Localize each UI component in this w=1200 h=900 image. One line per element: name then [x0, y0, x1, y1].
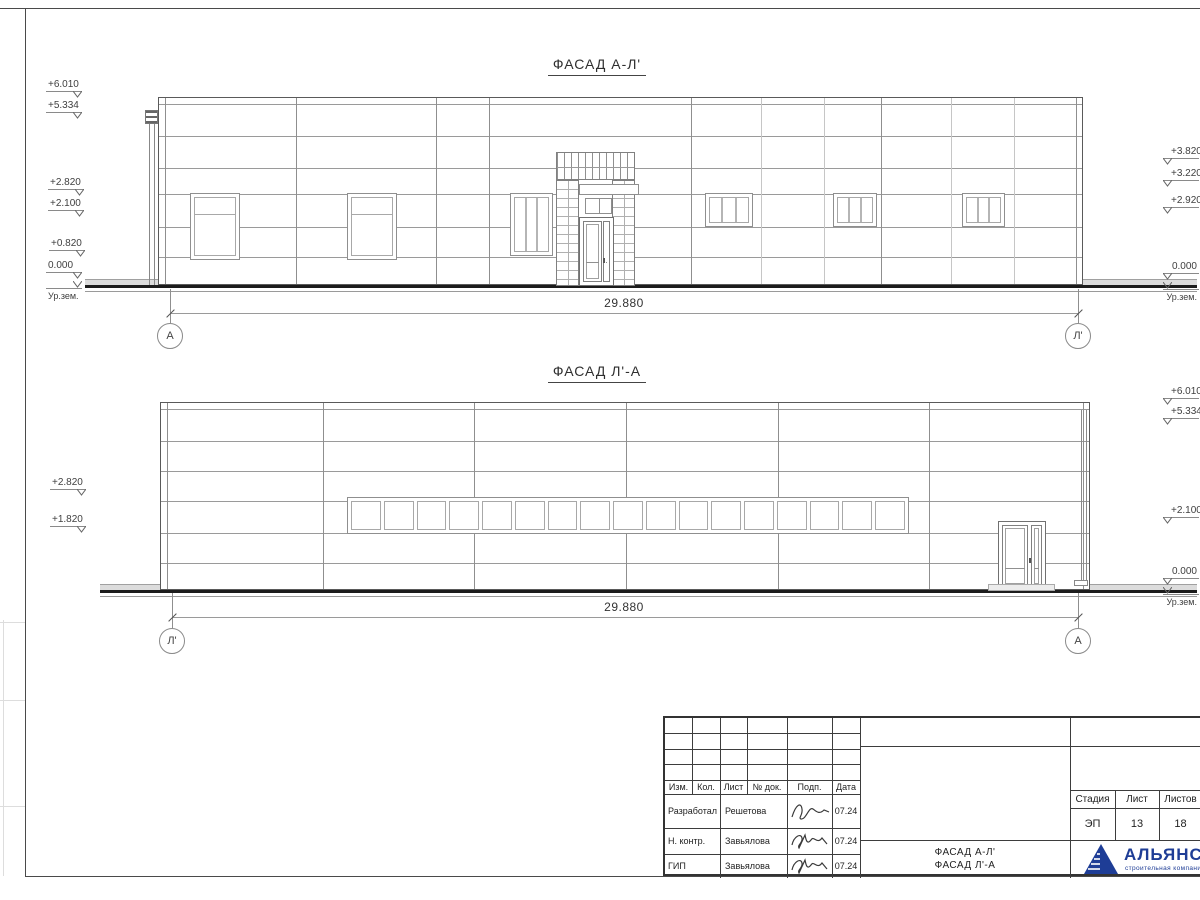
door-handle	[1029, 558, 1031, 563]
elevation-mark: +2.820	[48, 177, 84, 190]
signature	[789, 830, 831, 852]
row-date: 07.24	[832, 828, 860, 854]
elevation-arrow-icon	[1163, 272, 1172, 279]
ribbon-window-pane	[842, 501, 872, 530]
row-role: Н. контр.	[665, 828, 720, 854]
title-block-line	[665, 764, 860, 765]
door-rail	[1005, 568, 1025, 569]
ribbon-window-pane	[646, 501, 676, 530]
ribbon-window-pane	[613, 501, 643, 530]
company-logo-icon	[1084, 844, 1118, 874]
elevation-mark: +6.010	[46, 79, 82, 92]
row-date: 07.24	[832, 794, 860, 828]
window	[833, 193, 877, 227]
elevation-mark: +3.820	[1163, 146, 1199, 159]
entrance-door	[579, 217, 614, 286]
title-block-line	[665, 749, 860, 750]
axis-circle: Л'	[1065, 323, 1091, 349]
column-header-podp: Подп.	[787, 780, 832, 794]
signature	[789, 855, 831, 877]
elevation-arrow-icon	[1163, 417, 1172, 424]
ground-line	[85, 285, 1197, 288]
binding-margin-line	[0, 700, 25, 701]
row-date: 07.24	[832, 854, 860, 878]
panel-joint-line	[161, 471, 1089, 472]
document-title-line1: ФАСАД А-Л'	[935, 846, 996, 859]
panel-joint-line	[159, 136, 1082, 137]
axis-label: А	[166, 330, 173, 342]
elevation-arrow-icon	[76, 249, 85, 256]
axis-label: А	[1074, 635, 1081, 647]
elevation-arrow-icon	[77, 525, 86, 532]
entrance-canopy-hatch	[556, 152, 635, 180]
elevation-arrow-icon	[75, 188, 84, 195]
column-header-data: Дата	[832, 780, 860, 794]
window-pane	[527, 198, 539, 251]
panel-joint-line	[161, 441, 1089, 442]
company-logo-cell: АЛЬЯНС строительная компания	[1070, 840, 1200, 878]
row-role: ГИП	[665, 854, 720, 878]
door-glass	[1005, 528, 1025, 584]
sheet-number: 13	[1115, 808, 1159, 840]
facade-top-title: ФАСАД А-Л'	[512, 56, 682, 72]
downspout	[149, 124, 155, 285]
window-pane	[710, 198, 723, 222]
elevation-mark: +6.010	[1163, 386, 1199, 399]
title-block: Изм. Кол. Лист № док. Подп. Дата Разрабо…	[663, 716, 1200, 876]
door-rail	[1034, 568, 1039, 569]
elevation-mark: +2.920	[1163, 195, 1199, 208]
transom-mullion	[599, 199, 600, 213]
panel-seam	[691, 98, 692, 284]
elevation-mark-zero: 0.000Ур.зем.	[46, 260, 82, 302]
column-header-ndok: № док.	[747, 780, 787, 794]
extension-line	[172, 593, 173, 628]
door-rail	[606, 262, 607, 263]
axis-label: Л'	[167, 635, 176, 647]
stage-column-header: Стадия	[1070, 790, 1115, 808]
sheet-frame-top	[0, 8, 1200, 9]
elevation-mark: +5.334	[46, 100, 82, 113]
door-glass	[586, 224, 599, 279]
ground-line-thin	[85, 291, 1197, 292]
title-block-line	[860, 746, 1200, 747]
facade-bottom-drawing	[160, 402, 1090, 590]
panel-seam	[881, 98, 882, 284]
panel-seam	[778, 403, 779, 589]
ground-level-label: Ур.зем.	[46, 288, 82, 302]
row-name: Решетова	[722, 794, 786, 828]
exit-door	[998, 521, 1046, 591]
door-rail	[586, 262, 599, 263]
window-pane	[850, 198, 862, 222]
ribbon-window-pane	[875, 501, 905, 530]
axis-circle: А	[157, 323, 183, 349]
panel-seam	[929, 403, 930, 589]
canopy-joint	[557, 167, 634, 168]
window-frame	[709, 197, 749, 223]
ribbon-window	[347, 497, 909, 534]
sheets-total: 18	[1159, 808, 1200, 840]
panel-seam-light	[761, 98, 762, 284]
downspout	[1081, 410, 1087, 582]
ribbon-window-pane	[417, 501, 447, 530]
facade-top-title-text: ФАСАД А-Л'	[548, 56, 646, 76]
ground-level-label: Ур.зем.	[1163, 594, 1199, 608]
elevation-mark: +0.820	[49, 238, 85, 251]
sheet-frame-left	[25, 8, 26, 876]
window-pane	[967, 198, 979, 222]
window-pane	[979, 198, 991, 222]
stage-value: ЭП	[1070, 808, 1115, 840]
company-name: АЛЬЯНС	[1124, 845, 1200, 865]
entrance-sign-band	[579, 184, 639, 195]
window-transom	[351, 214, 393, 215]
elevation-arrow-icon	[1163, 179, 1172, 186]
elevation-arrow-icon	[1163, 516, 1172, 523]
axis-circle: Л'	[159, 628, 185, 654]
elevation-arrow-icon	[1163, 281, 1172, 288]
door-sidelight	[1031, 525, 1042, 587]
panel-seam-light	[824, 98, 825, 284]
window	[347, 193, 397, 260]
corner-line	[1076, 98, 1077, 284]
row-name: Завьялова	[722, 854, 786, 878]
elevation-arrow-icon	[1163, 157, 1172, 164]
ground-level-label: Ур.зем.	[1163, 289, 1199, 303]
elevation-arrow-icon	[1163, 586, 1172, 593]
binding-margin-line	[0, 806, 25, 807]
extension-line	[1078, 593, 1079, 628]
ground-line-thin	[100, 596, 1197, 597]
panel-seam	[296, 98, 297, 284]
panel-seam	[474, 403, 475, 589]
sheet-column-header: Лист	[1115, 790, 1159, 808]
ribbon-window-pane	[548, 501, 578, 530]
dimension-line	[172, 617, 1078, 618]
window	[962, 193, 1005, 227]
window-frame	[514, 197, 549, 252]
panel-seam	[436, 98, 437, 284]
facade-bottom-title: ФАСАД Л'-А	[512, 363, 682, 379]
elevation-mark-zero: 0.000Ур.зем.	[1163, 566, 1199, 608]
elevation-arrow-icon	[77, 488, 86, 495]
sheets-column-header: Листов	[1159, 790, 1200, 808]
ribbon-window-pane	[351, 501, 381, 530]
door-glass	[1034, 528, 1039, 584]
elevation-arrow-icon	[1163, 206, 1172, 213]
window-pane	[737, 198, 748, 222]
elevation-arrow-icon	[1163, 577, 1172, 584]
ribbon-window-pane	[777, 501, 807, 530]
panel-seam	[626, 403, 627, 589]
parapet-line	[159, 104, 1082, 105]
elevation-mark: +2.100	[1163, 505, 1199, 518]
door-leaf	[583, 221, 602, 282]
facade-top-drawing	[158, 97, 1083, 285]
window-pane	[515, 198, 527, 251]
drawing-sheet: { "drawing": { "facade_top": { "title": …	[0, 0, 1200, 900]
entrance-column	[612, 180, 635, 286]
binding-margin-line	[3, 620, 4, 876]
dimension-line	[170, 313, 1078, 314]
elevation-arrow-icon	[73, 90, 82, 97]
window-frame	[194, 197, 236, 256]
window-pane	[723, 198, 736, 222]
document-title: ФАСАД А-Л' ФАСАД Л'-А	[860, 840, 1070, 878]
elevation-arrow-icon	[75, 209, 84, 216]
door-sidelight	[603, 221, 610, 282]
facade-bottom-title-text: ФАСАД Л'-А	[548, 363, 646, 383]
corner-line	[165, 98, 166, 284]
window-pane	[538, 198, 548, 251]
elevation-mark: +3.220	[1163, 168, 1199, 181]
window-frame	[351, 197, 393, 256]
elevation-mark: +1.820	[50, 514, 86, 527]
dimension-label: 29.880	[574, 296, 674, 310]
elevation-mark: +2.100	[48, 198, 84, 211]
ribbon-window-pane	[810, 501, 840, 530]
row-role: Разработал	[665, 794, 720, 828]
axis-label: Л'	[1073, 330, 1082, 342]
door-step	[988, 584, 1055, 591]
extension-line	[170, 289, 171, 323]
elevation-mark: +5.334	[1163, 406, 1199, 419]
drain-funnel	[145, 110, 158, 124]
ribbon-window-pane	[711, 501, 741, 530]
elevation-arrow-icon	[73, 111, 82, 118]
panel-joint-line	[161, 563, 1089, 564]
window	[190, 193, 240, 260]
window	[510, 193, 553, 256]
ribbon-window-panes	[351, 501, 905, 530]
binding-margin-line	[0, 622, 25, 623]
ribbon-window-pane	[580, 501, 610, 530]
company-subtitle: строительная компания	[1125, 865, 1200, 872]
column-header-izm: Изм.	[665, 780, 692, 794]
ribbon-window-pane	[449, 501, 479, 530]
ribbon-window-pane	[384, 501, 414, 530]
axis-circle: А	[1065, 628, 1091, 654]
column-header-kol: Кол.	[692, 780, 720, 794]
panel-seam-light	[1014, 98, 1015, 284]
signature	[789, 800, 831, 824]
corner-line	[167, 403, 168, 589]
panel-seam-light	[951, 98, 952, 284]
panel-seam	[323, 403, 324, 589]
window-transom	[194, 214, 236, 215]
window-frame	[966, 197, 1001, 223]
entrance-column	[556, 180, 579, 286]
downspout-foot	[1074, 580, 1088, 586]
window-pane	[862, 198, 872, 222]
window-pane	[838, 198, 850, 222]
elevation-arrow-icon	[1163, 397, 1172, 404]
ribbon-window-pane	[515, 501, 545, 530]
elevation-mark-zero: 0.000Ур.зем.	[1163, 261, 1199, 303]
door-transom-window	[585, 198, 612, 214]
elevation-mark: +2.820	[50, 477, 86, 490]
ribbon-window-pane	[679, 501, 709, 530]
window-frame	[837, 197, 873, 223]
panel-seam	[489, 98, 490, 284]
document-title-line2: ФАСАД Л'-А	[935, 859, 996, 872]
window	[705, 193, 753, 227]
door-leaf	[1002, 525, 1028, 587]
ribbon-window-pane	[744, 501, 774, 530]
parapet-line	[161, 409, 1089, 410]
title-block-line	[665, 733, 860, 734]
extension-line	[1078, 289, 1079, 323]
door-handle	[603, 258, 605, 263]
elevation-arrow-icon	[73, 271, 82, 278]
window-pane	[990, 198, 1000, 222]
elevation-arrow-icon	[73, 280, 82, 287]
column-header-list: Лист	[720, 780, 747, 794]
row-name: Завьялова	[722, 828, 786, 854]
dimension-label: 29.880	[574, 600, 674, 614]
ribbon-window-pane	[482, 501, 512, 530]
